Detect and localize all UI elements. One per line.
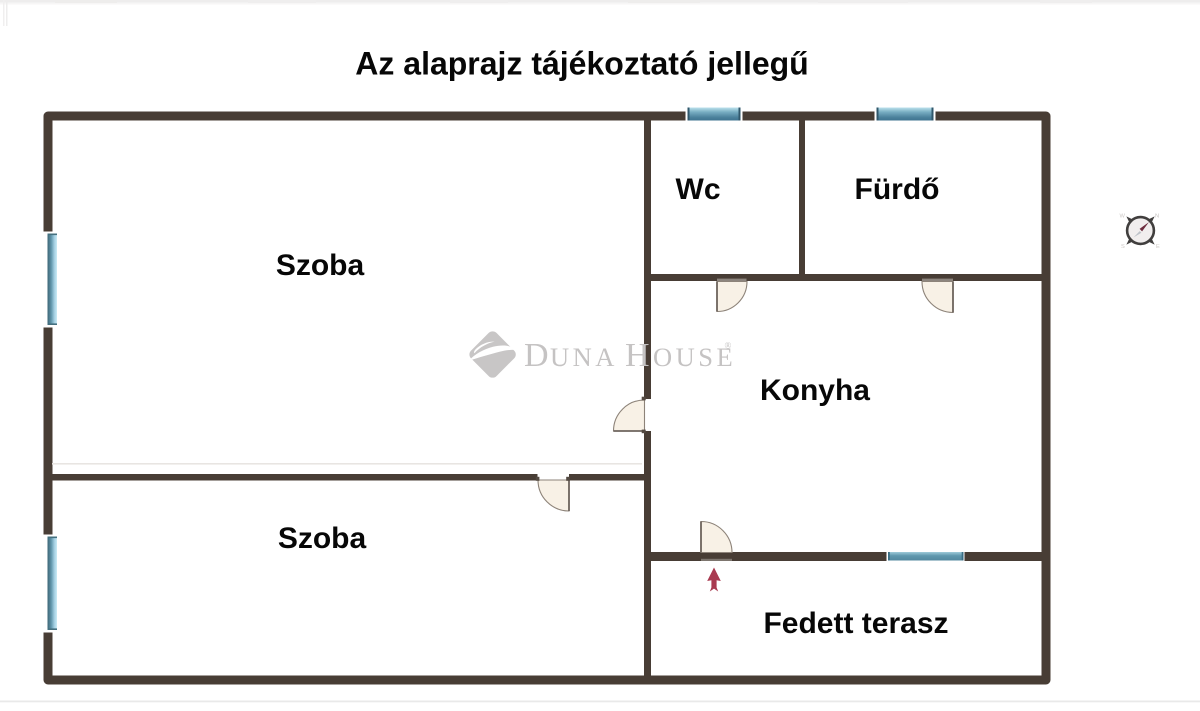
- svg-text:®: ®: [725, 341, 732, 351]
- svg-text:Szoba: Szoba: [276, 249, 365, 282]
- svg-text:Az alaprajz tájékoztató jelleg: Az alaprajz tájékoztató jellegű: [355, 46, 808, 82]
- svg-text:S: S: [1121, 244, 1125, 250]
- svg-text:UNA: UNA: [550, 342, 618, 372]
- svg-text:D: D: [524, 337, 549, 374]
- svg-text:E: E: [1156, 244, 1160, 250]
- svg-text:Fedett terasz: Fedett terasz: [763, 607, 948, 640]
- svg-text:H: H: [625, 337, 650, 374]
- svg-text:Fürdő: Fürdő: [855, 173, 940, 206]
- svg-text:Wc: Wc: [676, 173, 721, 206]
- svg-text:W: W: [1120, 214, 1126, 220]
- svg-text:Szoba: Szoba: [278, 522, 367, 555]
- svg-text:Konyha: Konyha: [760, 374, 870, 407]
- svg-text:N: N: [1155, 214, 1159, 220]
